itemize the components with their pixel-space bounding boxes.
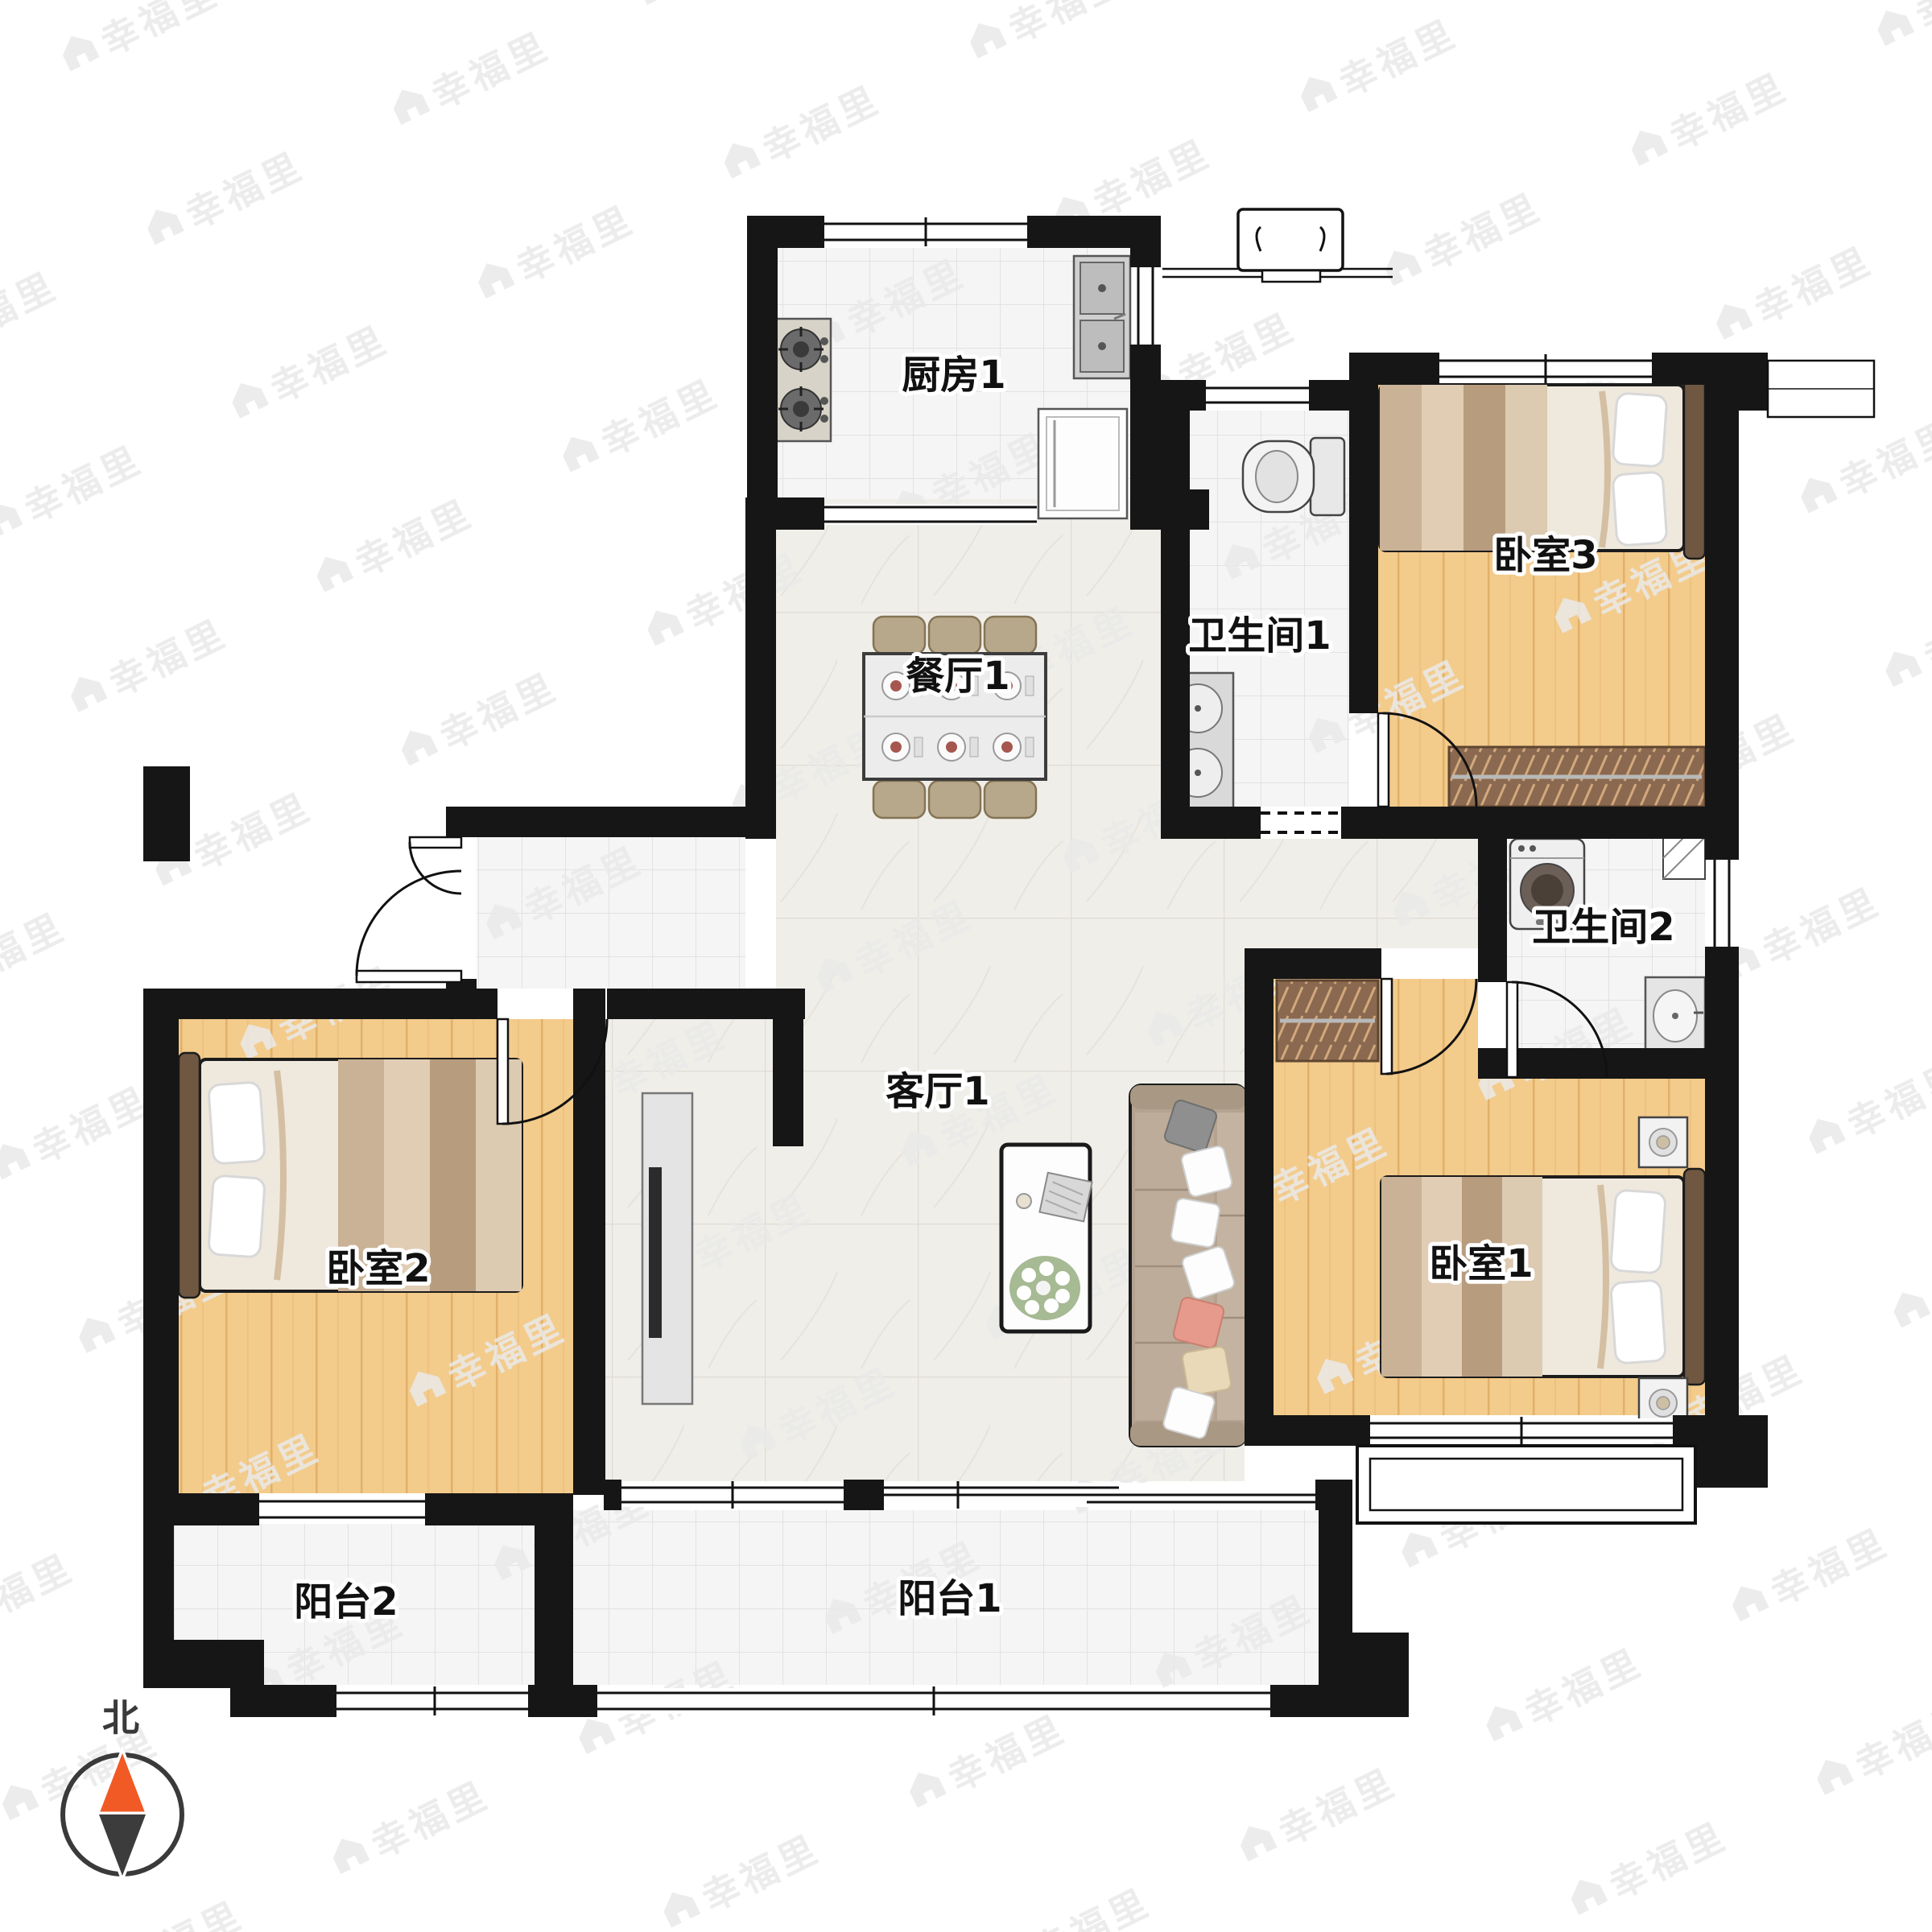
room-label-bath2: 卫生间2 xyxy=(1532,905,1674,950)
living-window-west xyxy=(621,1481,844,1509)
tv-icon xyxy=(649,1167,662,1338)
dining-table-icon xyxy=(864,617,1046,818)
bath1-window xyxy=(1206,383,1309,407)
bed3-icon xyxy=(1380,378,1705,559)
kitchen-sink-icon xyxy=(1074,256,1130,378)
bay-window xyxy=(1357,1446,1695,1523)
ac-ledge-icon xyxy=(1768,361,1874,417)
floorplan-svg: 幸福里 xyxy=(0,0,1932,1932)
flower-bouquet-icon xyxy=(1009,1256,1080,1320)
room-label-bedroom1: 卧室1 xyxy=(1429,1241,1533,1286)
compass-north-label: 北 xyxy=(102,1696,139,1740)
toilet-icon xyxy=(1243,438,1344,515)
balcony1-window xyxy=(597,1686,1270,1715)
wardrobe3-icon xyxy=(1449,747,1705,807)
coffee-table-icon xyxy=(1001,1145,1092,1331)
room-label-living: 客厅1 xyxy=(885,1069,989,1114)
watermark-layer xyxy=(0,0,1932,1932)
living-sliding-door xyxy=(884,1481,1315,1509)
room-label-balcony2: 阳台2 xyxy=(294,1579,398,1624)
kitchen-east-window xyxy=(1132,267,1159,345)
bath2-window xyxy=(1708,860,1736,947)
floorplan-canvas: 幸福里 xyxy=(0,0,1932,1932)
kitchen-window xyxy=(824,217,1027,246)
tv-cabinet-icon xyxy=(642,1093,692,1404)
room-label-bath1: 卫生间1 xyxy=(1188,613,1331,658)
bedroom2-south-window xyxy=(259,1496,425,1522)
room-label-balcony1: 阳台1 xyxy=(898,1576,1001,1621)
bedroom1-south-window xyxy=(1370,1417,1673,1444)
room-label-bedroom2: 卧室2 xyxy=(326,1246,430,1291)
balcony2-window xyxy=(336,1686,528,1715)
stove-icon xyxy=(774,319,831,441)
corner-shower-tray-icon xyxy=(1663,837,1705,879)
bedroom3-window xyxy=(1439,354,1652,383)
nightstand-icon xyxy=(1639,1117,1687,1167)
sofa-icon xyxy=(1130,1085,1246,1446)
room-label-bedroom3: 卧室3 xyxy=(1493,533,1597,578)
wardrobe1-icon xyxy=(1277,980,1378,1061)
bath2-sink-icon xyxy=(1645,977,1705,1056)
kitchen-sill xyxy=(824,504,1037,525)
room-label-dining: 餐厅1 xyxy=(906,654,1009,699)
room-label-kitchen: 厨房1 xyxy=(902,353,1005,398)
fridge-icon xyxy=(1038,409,1127,518)
